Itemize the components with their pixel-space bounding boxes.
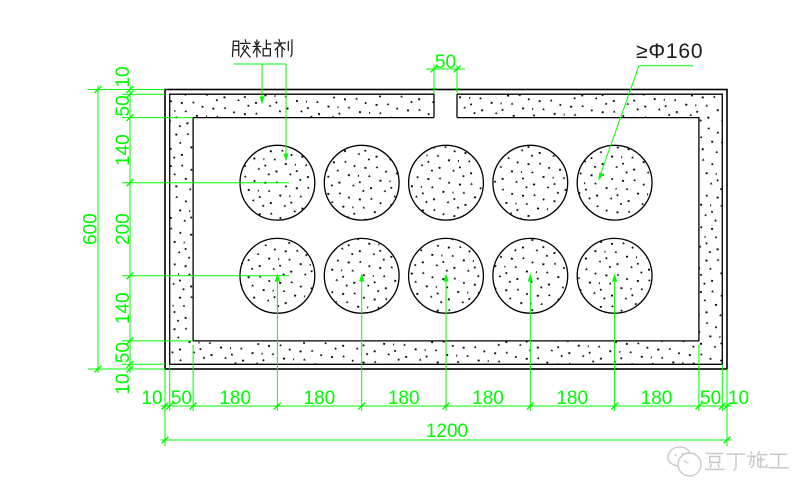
svg-text:10: 10: [113, 66, 134, 87]
svg-text:50: 50: [113, 342, 134, 363]
svg-text:600: 600: [81, 213, 102, 245]
svg-text:180: 180: [556, 388, 588, 409]
svg-text:180: 180: [641, 388, 673, 409]
svg-text:140: 140: [113, 292, 134, 324]
svg-text:≥Φ160: ≥Φ160: [636, 40, 703, 63]
svg-text:50: 50: [435, 52, 456, 73]
svg-text:50: 50: [700, 388, 721, 409]
svg-text:10: 10: [728, 388, 749, 409]
svg-text:10: 10: [141, 388, 162, 409]
svg-text:180: 180: [219, 388, 251, 409]
svg-text:1200: 1200: [426, 421, 468, 442]
svg-text:10: 10: [113, 373, 134, 394]
svg-text:140: 140: [113, 134, 134, 166]
svg-text:180: 180: [388, 388, 420, 409]
svg-text:200: 200: [113, 213, 134, 245]
svg-text:50: 50: [171, 388, 192, 409]
svg-text:180: 180: [472, 388, 504, 409]
svg-text:50: 50: [113, 95, 134, 116]
svg-text:180: 180: [304, 388, 336, 409]
